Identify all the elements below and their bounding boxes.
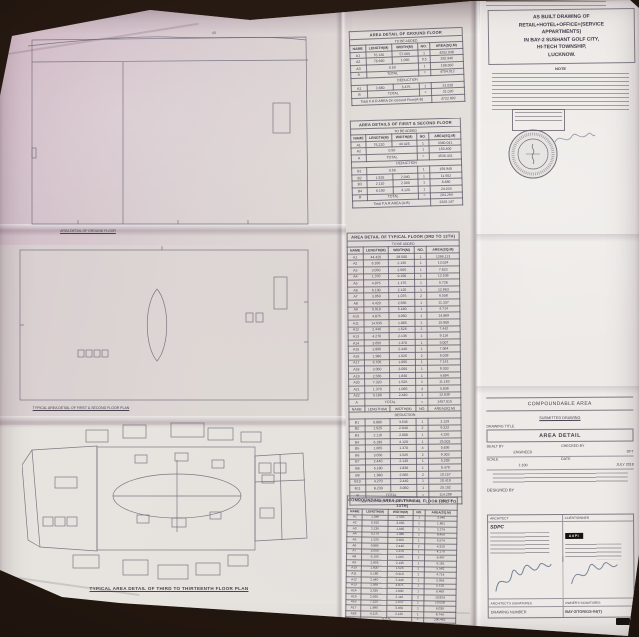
note-block: NOTE: [492, 66, 629, 111]
project-title-box: AS BUILT DRAWING OF RETAIL+HOTEL+OFFICE+…: [488, 8, 636, 65]
architect-address-lines: [490, 532, 550, 554]
ground-floor-plan-caption: AREA DETAIL OF GROUND FLOOR: [50, 229, 126, 233]
client-owner-label: CLIENT/OWNER: [562, 514, 634, 520]
drawing-number-label: DRAWING NUMBER: [489, 607, 561, 617]
architects-signatures-label: ARCHITECT'S SIGNATURES: [489, 599, 561, 606]
typical-floor-plan-caption: TYPICAL AREA DETAIL OF THIRD TO THIRTEEN…: [86, 586, 252, 591]
architect-logo: SDPC: [490, 524, 558, 530]
compoundable-area-heading: COMPOUNDABLE AREA: [486, 396, 633, 411]
horizontal-fold-3: [476, 234, 639, 242]
drawing-title: AREA DETAIL: [486, 428, 633, 442]
footer-logo-mark: [616, 618, 630, 625]
ground-plan-dimension-label: 40: [212, 31, 216, 35]
checked-by-value: DFT: [561, 447, 634, 455]
date-value: JULY 2018: [561, 460, 634, 468]
certification-note-lines: [493, 473, 628, 484]
drawing-number-value: BAY-2/TOR/GS-04(T): [562, 606, 634, 616]
first-second-floor-area-table: AREA DETAILS OF FIRST & SECOND FLOOR TO …: [350, 117, 463, 208]
ground-floor-plan-drawing: [18, 28, 318, 233]
note-fine-print-lines: [492, 73, 629, 111]
firm-block: ARCHITECT CLIENT/OWNER SDPC AAPI: [487, 513, 635, 618]
compounding-area-table: COMPOUNDING AREA OF TYPICAL FLOOR (3RD T…: [345, 495, 458, 624]
ground-floor-area-table: AREA DETAIL OF GROUND FLOOR TO BE ADDED …: [349, 27, 466, 106]
horizontal-fold-4: [476, 386, 639, 394]
typical-floor-plan-drawing: [22, 420, 322, 595]
vertical-fold-1: [336, 0, 346, 637]
first-second-floor-plan-caption: TYPICAL AREA DETAIL OF FIRST & SECOND FL…: [24, 406, 138, 410]
title-block: COMPOUNDABLE AREA SUBMITTED DRAWING DRAW…: [486, 396, 635, 618]
reference-fine-print: [515, 112, 562, 123]
note-heading: NOTE: [492, 66, 629, 71]
architect-label: ARCHITECT: [488, 515, 560, 521]
drawing-sheet: 40 AREA DETAIL OF GROUND FLOOR TYPICAL A…: [0, 0, 639, 637]
architect-signature: [488, 556, 558, 598]
project-title-line: LUCKNOW.: [491, 51, 632, 60]
cut-off-text-lines: [486, 1, 606, 8]
photo-background: 40 AREA DETAIL OF GROUND FLOOR TYPICAL A…: [0, 0, 639, 637]
submitted-drawing-label: SUBMITTED DRAWING: [486, 415, 633, 420]
handwritten-annotation: [552, 128, 597, 150]
dealt-by-value: ENGINEER: [487, 448, 560, 456]
vertical-fold-2: [470, 0, 482, 637]
typical-floor-area-table: AREA DETAIL OF TYPICAL FLOOR (3RD TO 13T…: [347, 231, 463, 505]
client-logo: AAPI: [565, 533, 583, 539]
owners-signatures-label: OWNER'S SIGNATURES: [562, 598, 634, 605]
first-second-floor-plan-drawing: [12, 242, 317, 414]
owner-signature: [562, 555, 633, 597]
scale-value: 1:100: [487, 461, 560, 469]
